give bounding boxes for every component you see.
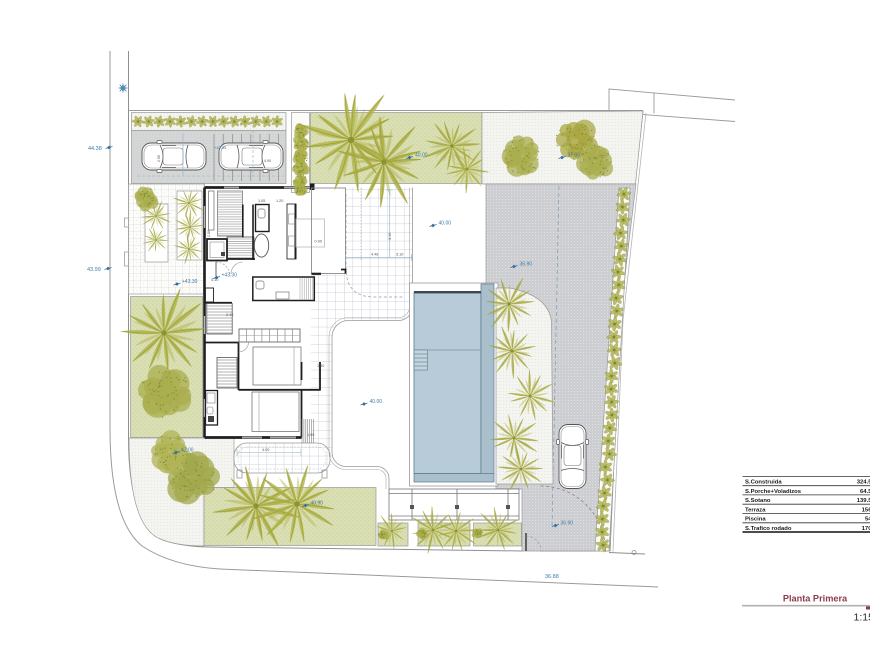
- svg-text:+43.30: +43.30: [182, 279, 198, 285]
- svg-text:+43.30: +43.30: [222, 273, 238, 279]
- svg-text:S.Trafico rodado: S.Trafico rodado: [745, 526, 792, 532]
- svg-text:1.05: 1.05: [258, 199, 265, 203]
- svg-text:Planta Primera: Planta Primera: [783, 594, 848, 604]
- svg-text:40.00: 40.00: [439, 221, 452, 227]
- svg-text:36.90: 36.90: [520, 262, 533, 268]
- svg-text:Terraza: Terraza: [745, 507, 766, 513]
- svg-text:37.90: 37.90: [568, 153, 581, 159]
- svg-text:S.Sotano: S.Sotano: [745, 498, 771, 504]
- svg-text:2.50: 2.50: [157, 155, 161, 162]
- svg-text:139.5: 139.5: [857, 498, 870, 504]
- svg-text:40.00: 40.00: [415, 153, 428, 159]
- svg-text:1.90: 1.90: [317, 364, 324, 368]
- svg-text:3.10: 3.10: [396, 252, 403, 256]
- svg-text:54: 54: [865, 517, 870, 523]
- svg-text:1.95: 1.95: [307, 433, 314, 437]
- svg-text:44.38: 44.38: [88, 146, 102, 152]
- svg-text:3.10: 3.10: [388, 233, 392, 240]
- svg-text:170: 170: [862, 526, 870, 532]
- svg-text:4.00: 4.00: [262, 448, 269, 452]
- svg-text:3.10: 3.10: [211, 278, 218, 282]
- svg-text:2.40: 2.40: [226, 313, 233, 317]
- svg-text:36.88: 36.88: [545, 574, 559, 580]
- svg-text:+43.85: +43.85: [214, 145, 227, 150]
- svg-text:43.99: 43.99: [87, 267, 101, 273]
- svg-text:156: 156: [862, 507, 870, 513]
- svg-text:4.90: 4.90: [264, 159, 271, 163]
- svg-text:0.90: 0.90: [315, 240, 322, 244]
- svg-text:64.5: 64.5: [860, 489, 870, 495]
- svg-text:1.20: 1.20: [276, 199, 283, 203]
- svg-text:S.Porche+Voladizos: S.Porche+Voladizos: [745, 489, 802, 495]
- svg-text:Piscina: Piscina: [745, 517, 766, 523]
- svg-text:42.00: 42.00: [181, 448, 194, 454]
- svg-text:40.90: 40.90: [311, 501, 324, 507]
- svg-text:2.86: 2.86: [207, 230, 211, 237]
- svg-text:4.46: 4.46: [371, 252, 378, 256]
- svg-text:40.00: 40.00: [370, 399, 383, 405]
- svg-text:S.Construida: S.Construida: [745, 480, 782, 486]
- svg-text:36.90: 36.90: [561, 521, 574, 527]
- svg-text:1:150: 1:150: [854, 612, 870, 624]
- svg-text:324.5: 324.5: [857, 480, 870, 486]
